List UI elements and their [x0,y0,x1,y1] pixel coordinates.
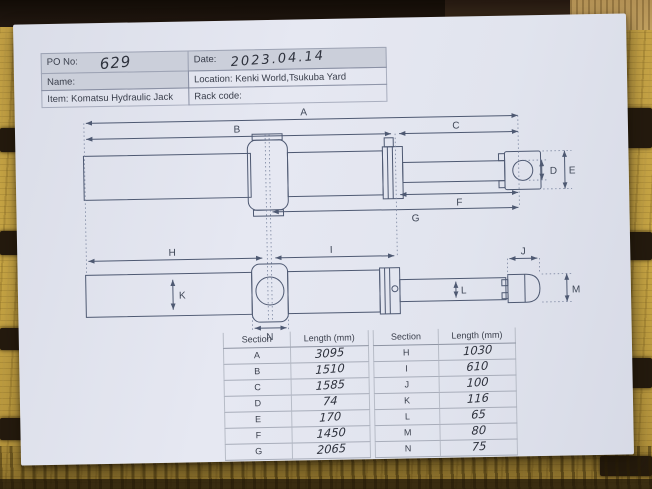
dim-label-K: K [179,291,186,302]
section-cell: B [223,364,290,380]
length-value-handwritten: 170 [319,410,341,425]
length-value-handwritten: 116 [467,391,489,406]
dim-label-L: L [461,285,467,296]
length-value-handwritten: 3095 [315,346,345,361]
length-cell: 610 [439,359,517,375]
length-cell: 2065 [291,442,371,458]
construction-lines [84,114,575,333]
length-header: Length (mm) [438,327,516,343]
length-cell: 65 [439,407,517,423]
wood-bottom-band [0,479,652,489]
length-value-handwritten: 610 [466,359,488,374]
dim-label-D: D [550,166,557,177]
dim-label-C: C [452,120,459,131]
length-value-handwritten: 75 [471,440,486,454]
length-cell: 3095 [290,346,370,362]
section-cell: I [373,361,439,377]
section-cell: J [374,377,440,393]
section-cell: K [374,393,440,409]
dim-label-E: E [569,165,576,176]
length-value-handwritten: 1585 [315,378,345,393]
length-value-handwritten: 74 [323,394,338,408]
length-value-handwritten: 80 [471,424,486,438]
technical-drawing: A B C D E F G H I J K L M N [13,13,632,354]
section-cell: G [225,444,292,460]
dim-label-I: I [330,245,333,256]
length-cell: 1030 [438,343,516,359]
dimension-table-right: Section Length (mm) H1030 I610 J100 K116… [373,327,518,458]
dim-label-F: F [456,197,462,208]
dim-label-J: J [521,246,526,257]
section-cell: L [374,409,440,425]
length-cell: 75 [440,439,518,455]
section-cell: E [224,412,291,428]
length-cell: 1585 [290,378,370,394]
dim-label-H: H [169,248,176,259]
section-header: Section [373,329,439,345]
table-row: N75 [375,439,518,458]
table-row: G2065 [225,442,371,461]
dimension-letters: A B C D E F G H I J K L M N [166,102,581,344]
dimension-table-left: Section Length (mm) A3095 B1510 C1585 D7… [223,330,371,461]
length-cell: 1510 [290,362,370,378]
dim-label-B: B [234,125,241,136]
length-value-handwritten: 2065 [316,442,346,457]
section-cell: H [373,345,439,361]
paper-sheet: PO No: 629 Date: 2023.04.14 Name: Locati… [13,13,634,465]
length-cell: 100 [439,375,517,391]
length-header: Length (mm) [289,330,369,346]
length-cell: 170 [291,410,371,426]
length-value-handwritten: 1450 [316,426,346,441]
section-cell: C [224,380,291,396]
photo-scene: PO No: 629 Date: 2023.04.14 Name: Locati… [0,0,652,489]
section-cell: D [224,396,291,412]
length-cell: 116 [439,391,517,407]
dim-label-A: A [300,107,307,118]
extended-jack-view [83,115,566,220]
retracted-jack-view [85,253,567,332]
section-cell: F [224,428,291,444]
length-cell: 74 [291,394,371,410]
section-header: Section [223,332,290,348]
length-value-handwritten: 100 [467,375,489,390]
section-cell: M [374,425,440,441]
dim-label-G: G [412,213,420,224]
length-cell: 1450 [291,426,371,442]
section-cell: A [223,348,290,364]
length-value-handwritten: 65 [471,408,486,422]
length-value-handwritten: 1510 [315,362,345,377]
dim-label-M: M [572,284,581,295]
length-value-handwritten: 1030 [462,343,492,358]
section-cell: N [375,441,441,457]
length-cell: 80 [440,423,518,439]
